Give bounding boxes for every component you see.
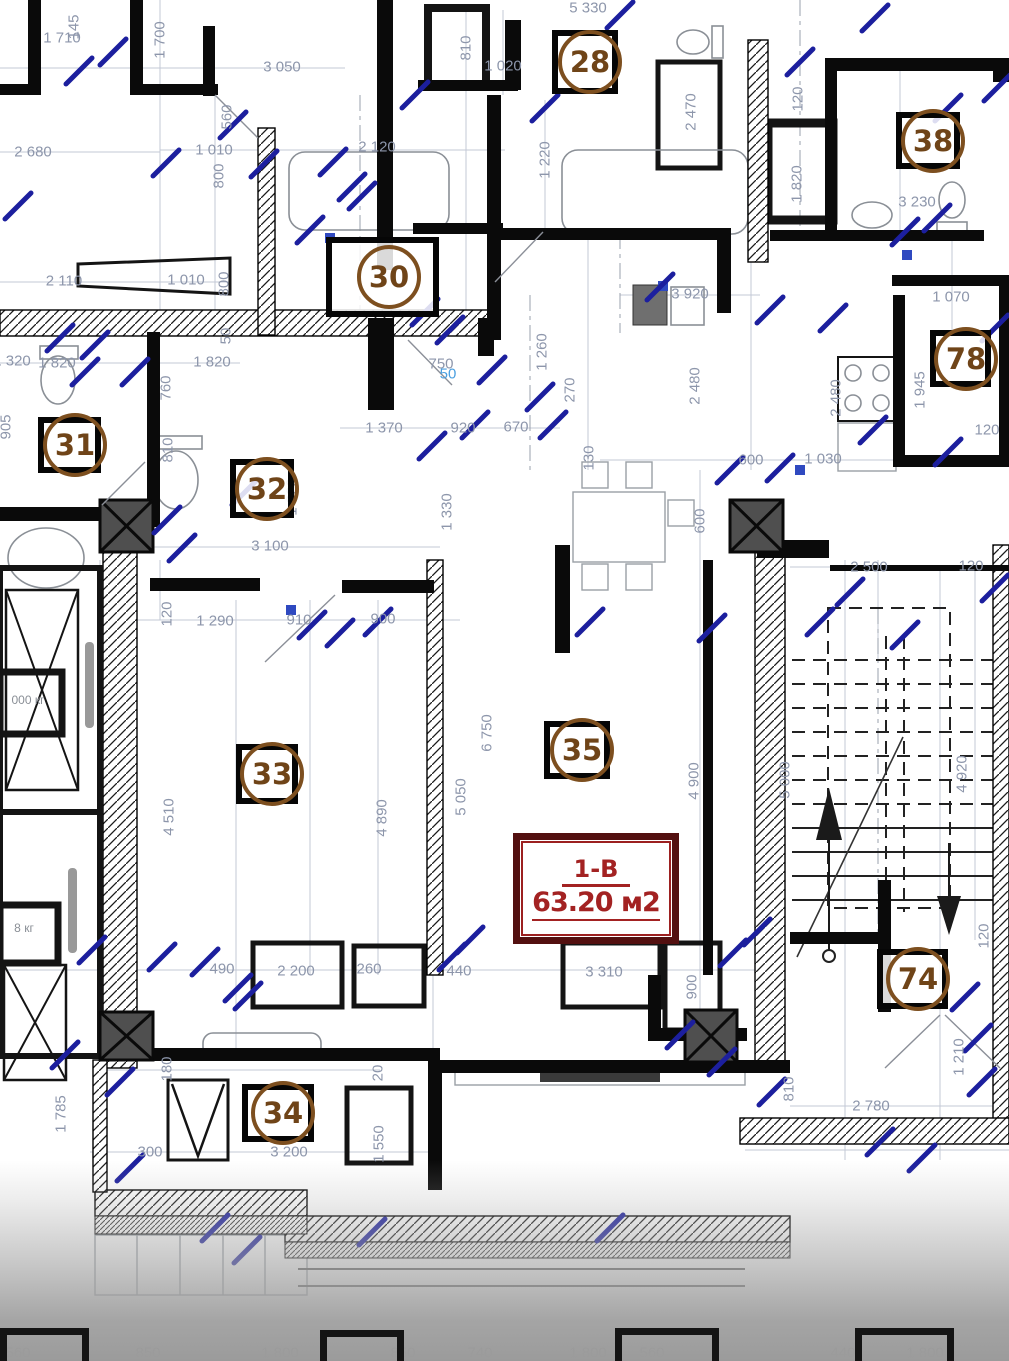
room-marker-number: 33 (240, 742, 304, 806)
apartment-code: 1-В (562, 856, 631, 887)
room-marker-32: 32 (230, 459, 294, 518)
room-marker-number: 30 (357, 245, 421, 309)
room-marker-30: 30 (326, 237, 439, 317)
room-marker-74: 74 (877, 949, 948, 1009)
room-marker-number: 35 (550, 718, 614, 782)
elevator-shafts (0, 568, 100, 1080)
apartment-area-value: 63.20 м2 (532, 887, 660, 921)
bottom-edge-wall-rect (0, 1328, 89, 1361)
bottom-edge-wall-rect (615, 1328, 719, 1361)
apartment-area-label: 1-В 63.20 м2 (513, 833, 679, 944)
room-marker-number: 32 (235, 457, 299, 521)
bottom-edge-wall-rect (855, 1328, 954, 1361)
room-marker-35: 35 (544, 721, 610, 779)
dimension-tick-marks (5, 2, 1009, 1263)
room-marker-33: 33 (236, 744, 298, 804)
room-marker-number: 78 (934, 327, 998, 391)
staircase (792, 608, 1003, 962)
room-marker-38: 38 (896, 112, 960, 169)
bottom-edge-wall-rect (320, 1330, 404, 1361)
room-marker-number: 28 (558, 30, 622, 94)
floor-plan-canvas: 1 7101451 7003 0505 3308101 0202 4701 22… (0, 0, 1009, 1361)
room-marker-28: 28 (552, 30, 618, 94)
room-marker-78: 78 (930, 330, 991, 387)
room-marker-31: 31 (38, 417, 101, 473)
hatched-structural-walls (0, 40, 1009, 1258)
floorplan-drawing (0, 0, 1009, 1361)
room-marker-number: 34 (251, 1081, 315, 1145)
room-marker-number: 38 (901, 109, 965, 173)
room-marker-number: 74 (886, 947, 950, 1011)
apartment-area-label-inner: 1-В 63.20 м2 (521, 841, 671, 936)
room-marker-number: 31 (43, 413, 107, 477)
room-marker-34: 34 (242, 1084, 314, 1142)
